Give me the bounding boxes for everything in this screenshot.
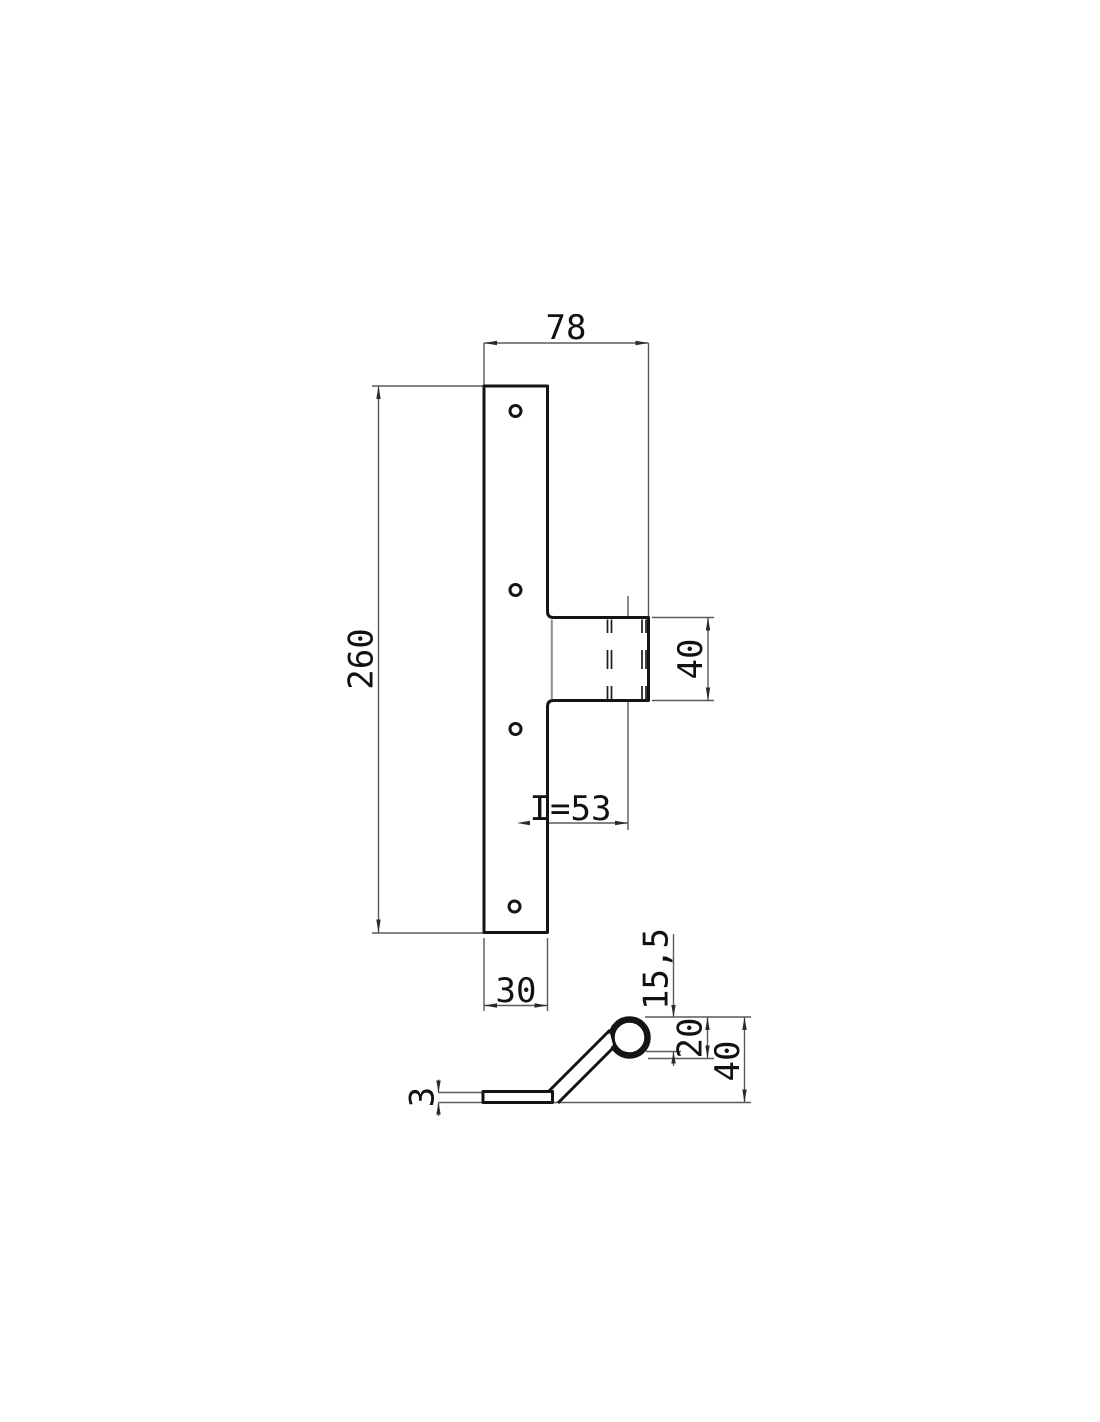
- hole: [510, 724, 521, 735]
- front-view: [484, 386, 649, 933]
- dim-eye-diameter: 20: [671, 1018, 711, 1059]
- side-view: [483, 1020, 648, 1104]
- hole: [510, 585, 521, 596]
- dim-hole-to-center: I=53: [530, 789, 612, 829]
- dim-tab-height: 40: [671, 639, 711, 680]
- strip-core: [550, 1033, 614, 1101]
- drawing-sheet: 78 260 40 I=53 30 15,5 20 40 3: [0, 0, 1100, 1422]
- dim-eye-depth: 15,5: [637, 928, 677, 1010]
- dimension-lines: [372, 343, 751, 1116]
- rolled-eye: [612, 1020, 648, 1056]
- dim-total-height: 40: [708, 1041, 748, 1082]
- dim-thickness: 3: [403, 1087, 443, 1107]
- dim-width-bottom: 30: [496, 971, 537, 1011]
- flat-strip: [483, 1092, 553, 1103]
- dim-width-top: 78: [546, 308, 587, 348]
- plate-outline: [484, 386, 649, 933]
- arrowheads: [376, 341, 746, 1115]
- technical-drawing: 78 260 40 I=53 30 15,5 20 40 3: [0, 0, 1100, 1422]
- dim-height: 260: [342, 628, 382, 689]
- hole: [510, 406, 521, 417]
- hole: [509, 901, 520, 912]
